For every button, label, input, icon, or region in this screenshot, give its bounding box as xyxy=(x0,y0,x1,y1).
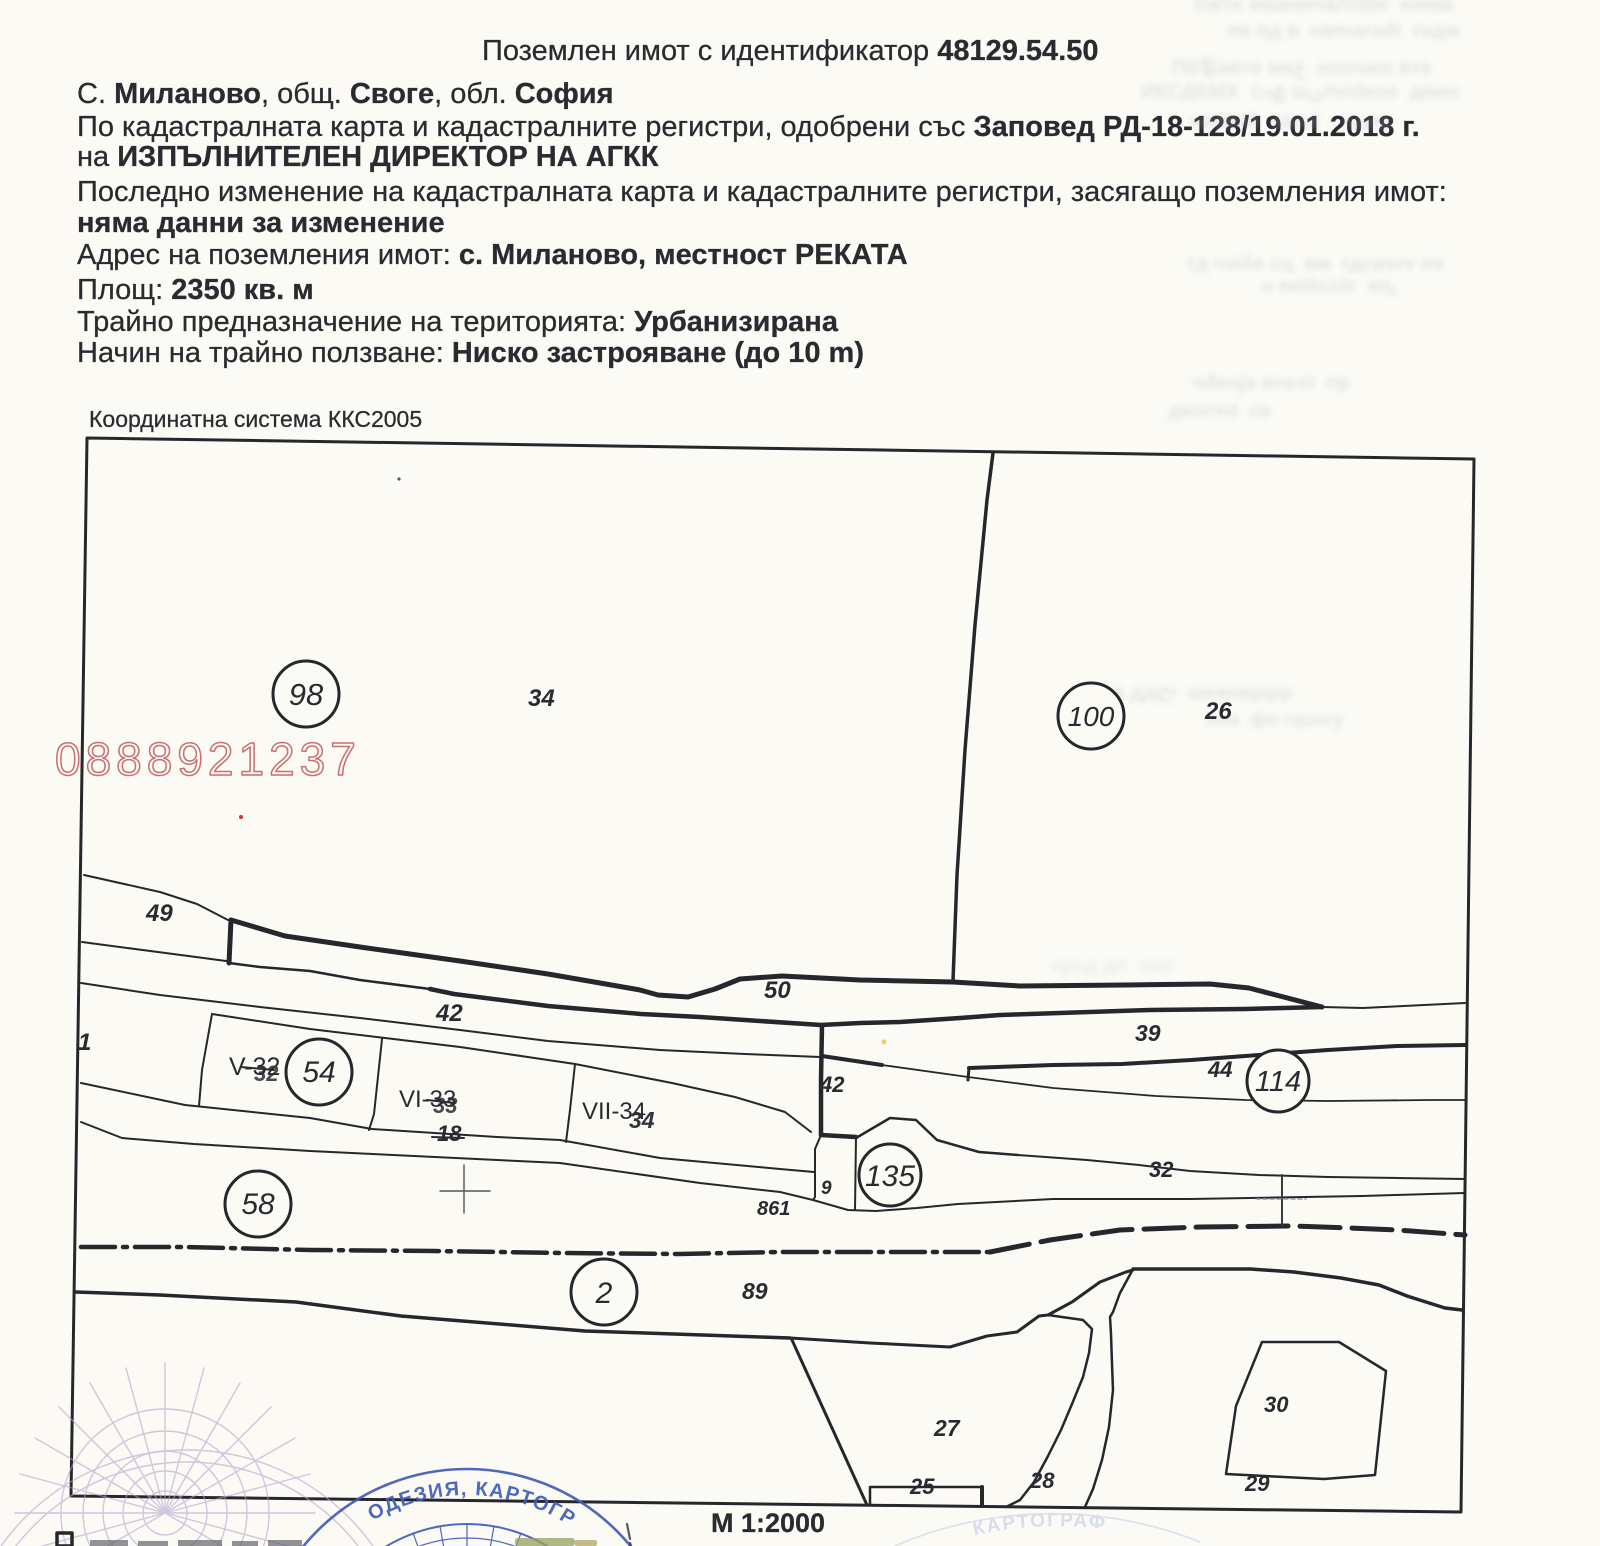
svg-text:89: 89 xyxy=(742,1278,768,1304)
svg-text:34: 34 xyxy=(629,1107,655,1133)
svg-text:100: 100 xyxy=(1068,701,1115,732)
svg-text:28: 28 xyxy=(1029,1468,1055,1493)
svg-text:50: 50 xyxy=(764,977,791,1004)
svg-text:98: 98 xyxy=(289,677,324,712)
svg-text:861: 861 xyxy=(757,1198,790,1220)
svg-text:44: 44 xyxy=(1207,1057,1232,1082)
svg-text:27: 27 xyxy=(933,1415,961,1441)
svg-text:114: 114 xyxy=(1255,1066,1301,1098)
svg-text:42: 42 xyxy=(435,1000,463,1027)
svg-text:30: 30 xyxy=(1264,1392,1289,1417)
svg-text:КАРТОГРАФ: КАРТОГРАФ xyxy=(971,1510,1108,1540)
svg-text:135: 135 xyxy=(865,1160,915,1193)
svg-text:25: 25 xyxy=(909,1474,935,1499)
svg-text:49: 49 xyxy=(145,900,173,927)
svg-text:29: 29 xyxy=(1244,1471,1270,1496)
svg-text:58: 58 xyxy=(241,1188,275,1221)
svg-text:0888921237: 0888921237 xyxy=(55,733,361,785)
svg-text:32: 32 xyxy=(254,1061,279,1086)
svg-text:18: 18 xyxy=(437,1121,462,1146)
svg-text:54: 54 xyxy=(302,1056,335,1089)
svg-text:42: 42 xyxy=(819,1072,845,1097)
svg-text:1: 1 xyxy=(78,1029,91,1056)
svg-text:9: 9 xyxy=(821,1178,832,1199)
svg-text:39: 39 xyxy=(1135,1020,1161,1046)
svg-text:2: 2 xyxy=(595,1277,613,1310)
svg-text:33: 33 xyxy=(433,1093,457,1118)
svg-text:34: 34 xyxy=(528,685,555,712)
svg-text:26: 26 xyxy=(1204,698,1232,725)
svg-text:32: 32 xyxy=(1149,1157,1174,1182)
